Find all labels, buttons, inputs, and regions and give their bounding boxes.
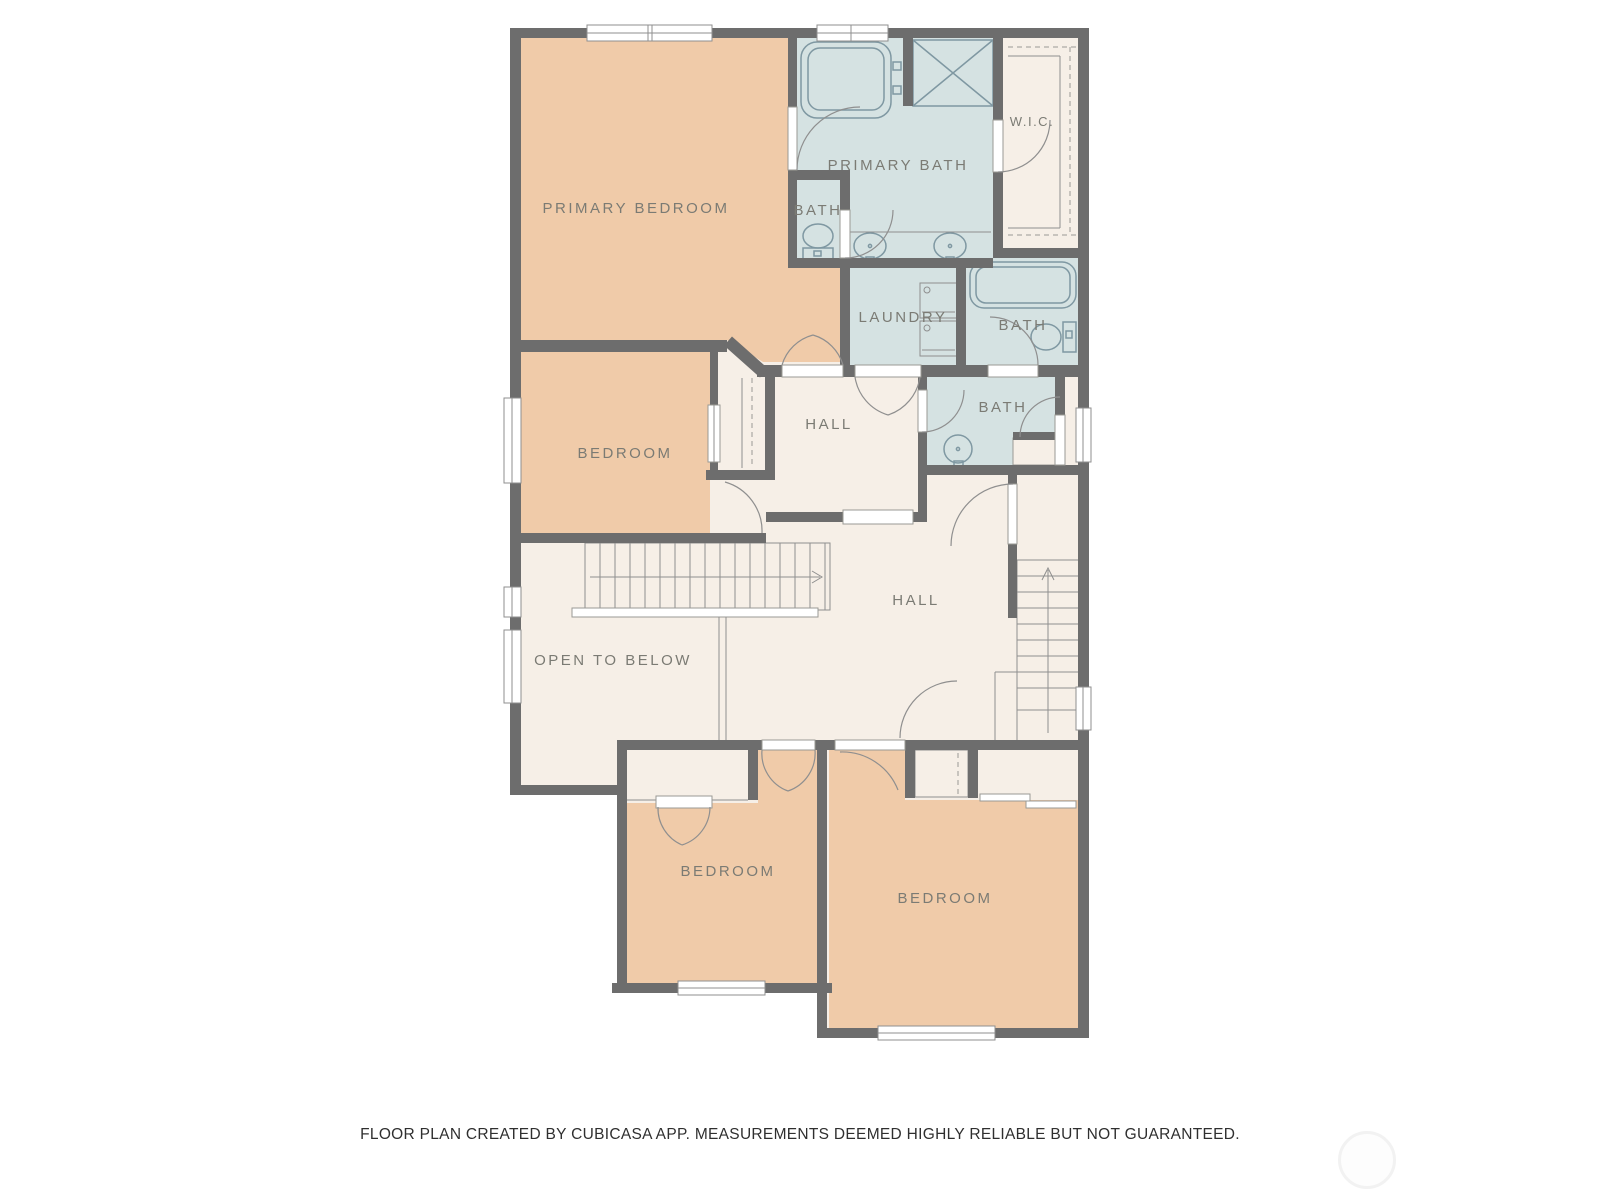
room-label-primary-bath: PRIMARY BATH [828, 157, 969, 174]
door-leaf [788, 107, 797, 170]
room-label-hall-upper: HALL [805, 416, 853, 433]
wall-int [710, 352, 718, 405]
wall-int [1008, 475, 1017, 484]
wall-int [710, 462, 718, 470]
door-leaf [918, 390, 927, 432]
window [878, 1026, 995, 1040]
wall-int [993, 248, 1081, 258]
window [504, 587, 521, 617]
window [504, 630, 521, 703]
window [504, 398, 521, 483]
room-label-laundry: LAUNDRY [859, 309, 948, 326]
room-label-open-to-below: OPEN TO BELOW [534, 652, 692, 669]
bath-middle-closet [1013, 438, 1055, 465]
window [817, 25, 888, 41]
wall-int [512, 533, 766, 543]
closet-bifold-slot [656, 796, 712, 808]
wall-int [788, 38, 797, 107]
room-label-bath-middle: BATH [979, 399, 1028, 416]
door-leaf [1055, 415, 1065, 465]
door-opening [988, 365, 1038, 377]
room-label-hall-main: HALL [892, 592, 940, 609]
wall-int [903, 38, 913, 106]
room-label-primary-bedroom: PRIMARY BEDROOM [543, 200, 730, 217]
wall-int [765, 373, 775, 480]
door-leaf [1008, 484, 1017, 544]
bypass-door [980, 794, 1030, 801]
wall-int [512, 340, 727, 352]
door-opening [855, 365, 921, 377]
wall-int [1055, 365, 1065, 415]
wall-int [706, 470, 775, 480]
wall-int [788, 170, 797, 268]
window [678, 981, 765, 995]
room-label-wic: W.I.C. [1010, 114, 1054, 129]
wall-outer-right [1078, 28, 1089, 1038]
room-label-bath-upper-small: BATH [794, 202, 843, 219]
wall-otb-bottom [510, 785, 622, 795]
wall-int [913, 512, 927, 522]
room-label-bedroom-lower-right: BEDROOM [897, 890, 992, 907]
stair-railing [572, 608, 818, 617]
wall-int [993, 172, 1003, 248]
window [587, 25, 712, 41]
window [1076, 687, 1091, 730]
door-opening [782, 365, 843, 377]
wall-int [766, 512, 843, 522]
cased-opening [843, 510, 913, 524]
wall-bedroom-separator [817, 740, 827, 1038]
door-leaf [993, 120, 1003, 172]
floor-plan: PRIMARY BEDROOM PRIMARY BATH BATH W.I.C.… [0, 0, 1600, 1200]
wall-int [1013, 432, 1055, 440]
window [1076, 408, 1091, 462]
room-label-bath-upper-right: BATH [999, 317, 1048, 334]
wall-int [905, 750, 915, 798]
watermark-circle [1338, 1131, 1396, 1189]
wall-left-lower [617, 740, 627, 993]
wall-int [1008, 544, 1017, 618]
exterior-mask [510, 993, 817, 1038]
wall-int [968, 750, 978, 798]
wall-int [993, 38, 1003, 120]
wall-int [840, 170, 850, 372]
door-opening [835, 740, 905, 750]
wall-int [918, 465, 1081, 475]
door-opening [762, 740, 815, 750]
wall-int [956, 258, 966, 372]
room-label-bedroom-lower-left: BEDROOM [680, 863, 775, 880]
floor-plan-page: PRIMARY BEDROOM PRIMARY BATH BATH W.I.C.… [0, 0, 1600, 1200]
room-bedroom-middle [521, 352, 710, 533]
bypass-door [1026, 801, 1076, 808]
room-label-bedroom-middle: BEDROOM [577, 445, 672, 462]
wall-int [748, 750, 758, 800]
